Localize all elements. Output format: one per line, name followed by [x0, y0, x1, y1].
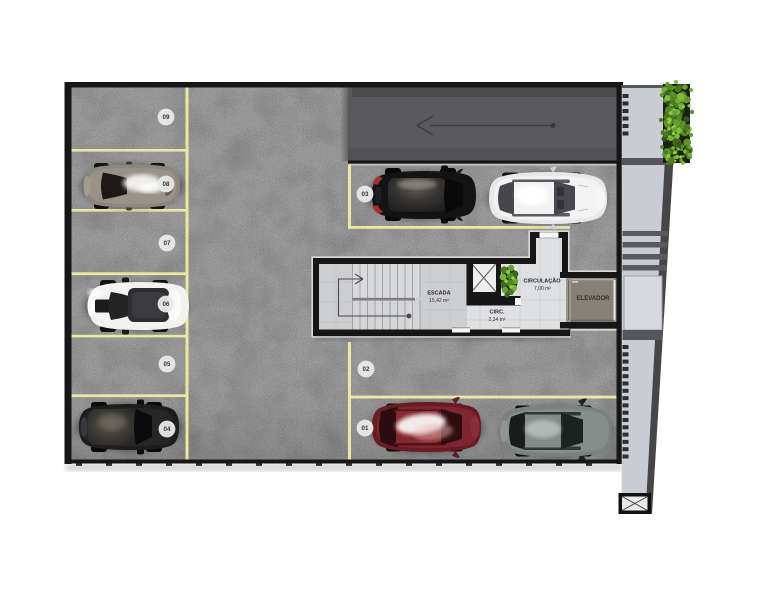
svg-text:2,34 m²: 2,34 m²: [489, 317, 506, 323]
svg-text:09: 09: [163, 114, 170, 121]
svg-text:ESCADA: ESCADA: [427, 291, 450, 297]
svg-text:ELEVADOR: ELEVADOR: [577, 296, 611, 302]
svg-text:CIRCULAÇÃO: CIRCULAÇÃO: [524, 278, 562, 285]
svg-text:04: 04: [164, 426, 171, 433]
svg-text:05: 05: [164, 361, 171, 368]
svg-text:07: 07: [164, 240, 171, 247]
svg-text:03: 03: [362, 191, 369, 198]
svg-text:08: 08: [163, 181, 170, 188]
svg-text:01: 01: [362, 425, 369, 432]
svg-text:06: 06: [163, 301, 170, 308]
svg-text:7,00 m²: 7,00 m²: [534, 286, 551, 292]
svg-text:CIRC.: CIRC.: [490, 310, 505, 316]
svg-text:15,42 m²: 15,42 m²: [429, 298, 449, 304]
svg-text:02: 02: [363, 366, 370, 373]
